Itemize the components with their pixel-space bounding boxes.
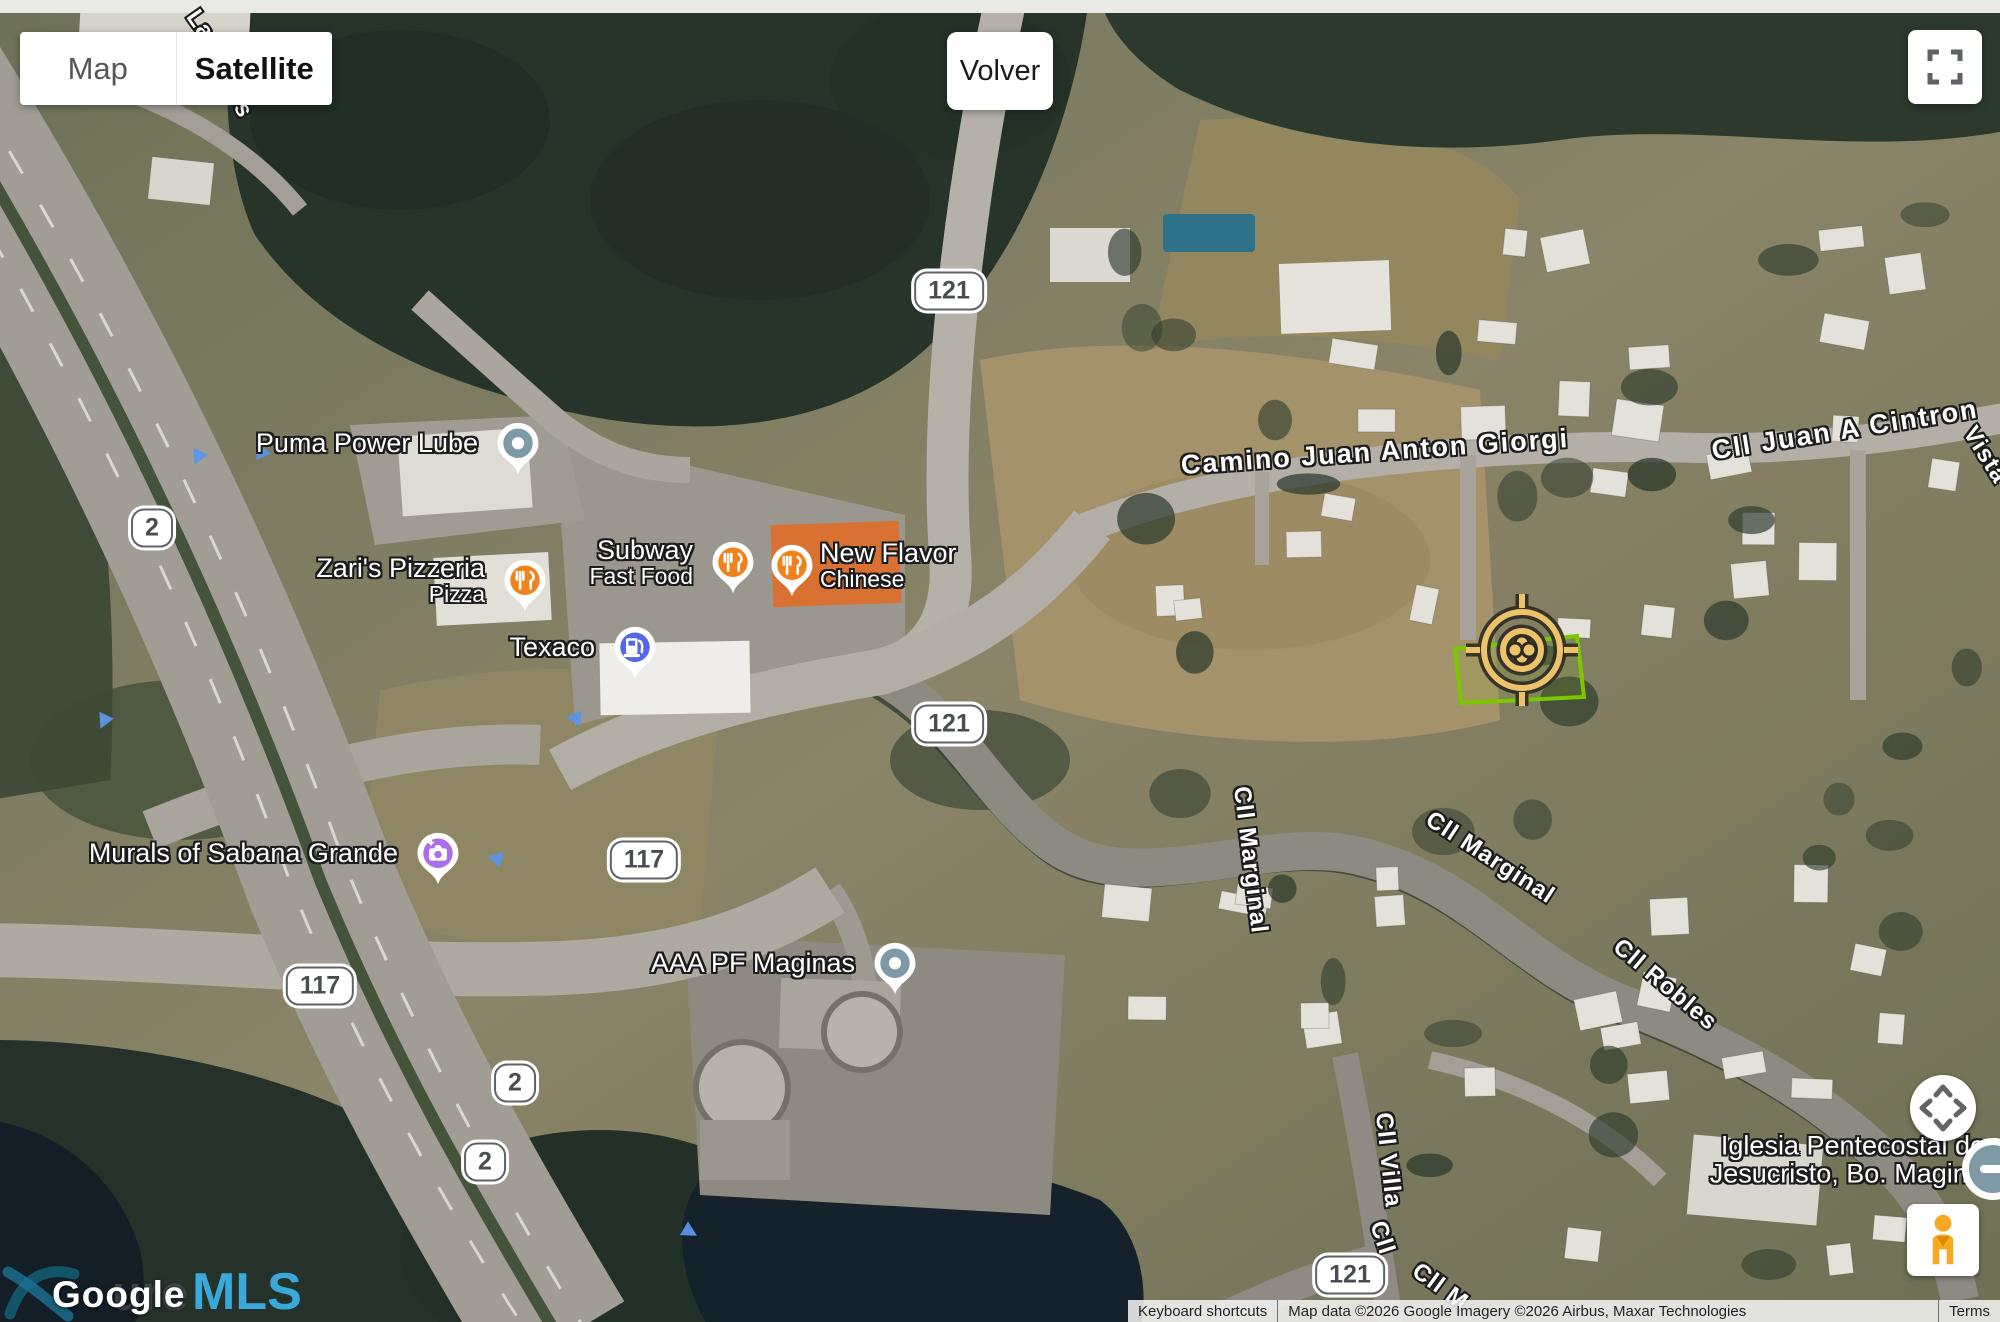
poi-name-line2: Jesucristo, Bo. Maginas	[1710, 1160, 1997, 1188]
pan-control[interactable]	[1910, 1075, 1976, 1141]
poi-pin-subway[interactable]	[710, 541, 756, 600]
poi-pin-new-flavor[interactable]	[769, 544, 815, 603]
poi-pin-texaco[interactable]	[612, 626, 658, 685]
mls-watermark-brand: MLS	[192, 1262, 302, 1322]
poi-name: Subway	[589, 536, 693, 564]
pan-arrows-icon	[1915, 1080, 1971, 1136]
poi-label: New Flavor Chinese	[820, 539, 957, 591]
keyboard-shortcuts-button[interactable]: Keyboard shortcuts	[1128, 1303, 1277, 1320]
route-shield: 2	[131, 509, 173, 548]
poi-subtitle: Pizza	[316, 582, 485, 606]
route-shield: 117	[610, 841, 678, 880]
attribution-bar: Keyboard shortcuts Map data ©2026 Google…	[1128, 1300, 2000, 1322]
map-data-text: Map data ©2026 Google	[1288, 1303, 1452, 1320]
satellite-imagery	[0, 0, 2000, 1322]
poi-label-iglesia: Iglesia Pentecostal de Jesucristo, Bo. M…	[1710, 1132, 1997, 1189]
fullscreen-button[interactable]	[1908, 30, 1982, 104]
route-shield: 117	[286, 967, 354, 1006]
poi-name: Zari's Pizzeria	[316, 554, 485, 582]
poi-subtitle: Chinese	[820, 567, 957, 591]
route-shield: 121	[914, 705, 984, 744]
imagery-credit-text: Imagery ©2026 Airbus, Maxar Technologies	[1456, 1303, 1746, 1320]
poi-subtitle: Fast Food	[589, 564, 693, 588]
poi-label: Puma Power Lube	[256, 429, 478, 457]
route-shield: 121	[914, 272, 984, 311]
poi-pin-murals-of-sabana-grande[interactable]	[415, 832, 461, 891]
map-type-control: Map Satellite	[20, 32, 332, 105]
map-button[interactable]: Map	[20, 51, 176, 87]
pegman-icon	[1917, 1212, 1969, 1268]
route-shield: 2	[464, 1143, 506, 1182]
poi-label: Texaco	[509, 633, 595, 661]
poi-pin-aaa-pf-maginas[interactable]	[872, 942, 918, 1001]
poi-label: Zari's Pizzeria Pizza	[316, 554, 485, 606]
poi-label: Subway Fast Food	[589, 536, 693, 588]
poi-pin-zaris-pizzeria[interactable]	[502, 559, 548, 618]
volver-button[interactable]: Volver	[947, 32, 1053, 110]
map-data-credit: Map data ©2026 Google Imagery ©2026 Airb…	[1278, 1303, 1756, 1320]
terms-link[interactable]: Terms	[1939, 1303, 2000, 1320]
route-shield: 121	[1315, 1256, 1385, 1295]
top-edge-strip	[0, 0, 2000, 13]
google-logo[interactable]: Google	[52, 1274, 185, 1316]
poi-pin-puma-power-lube[interactable]	[495, 422, 541, 481]
poi-label: Murals of Sabana Grande	[89, 839, 398, 867]
pin-glyph	[1980, 1165, 2000, 1173]
route-shield: 2	[494, 1064, 536, 1103]
direction-arrow-icon	[565, 709, 581, 726]
pegman-button[interactable]	[1907, 1204, 1979, 1276]
poi-name: New Flavor	[820, 539, 957, 567]
poi-label: AAA PF Maginas	[651, 949, 855, 977]
satellite-button[interactable]: Satellite	[177, 51, 333, 87]
google-map-view[interactable]: La s Camino Juan Anton Giorgi Cll Juan A…	[0, 0, 2000, 1322]
selected-location-target-icon	[1462, 590, 1582, 710]
fullscreen-icon	[1927, 49, 1963, 85]
